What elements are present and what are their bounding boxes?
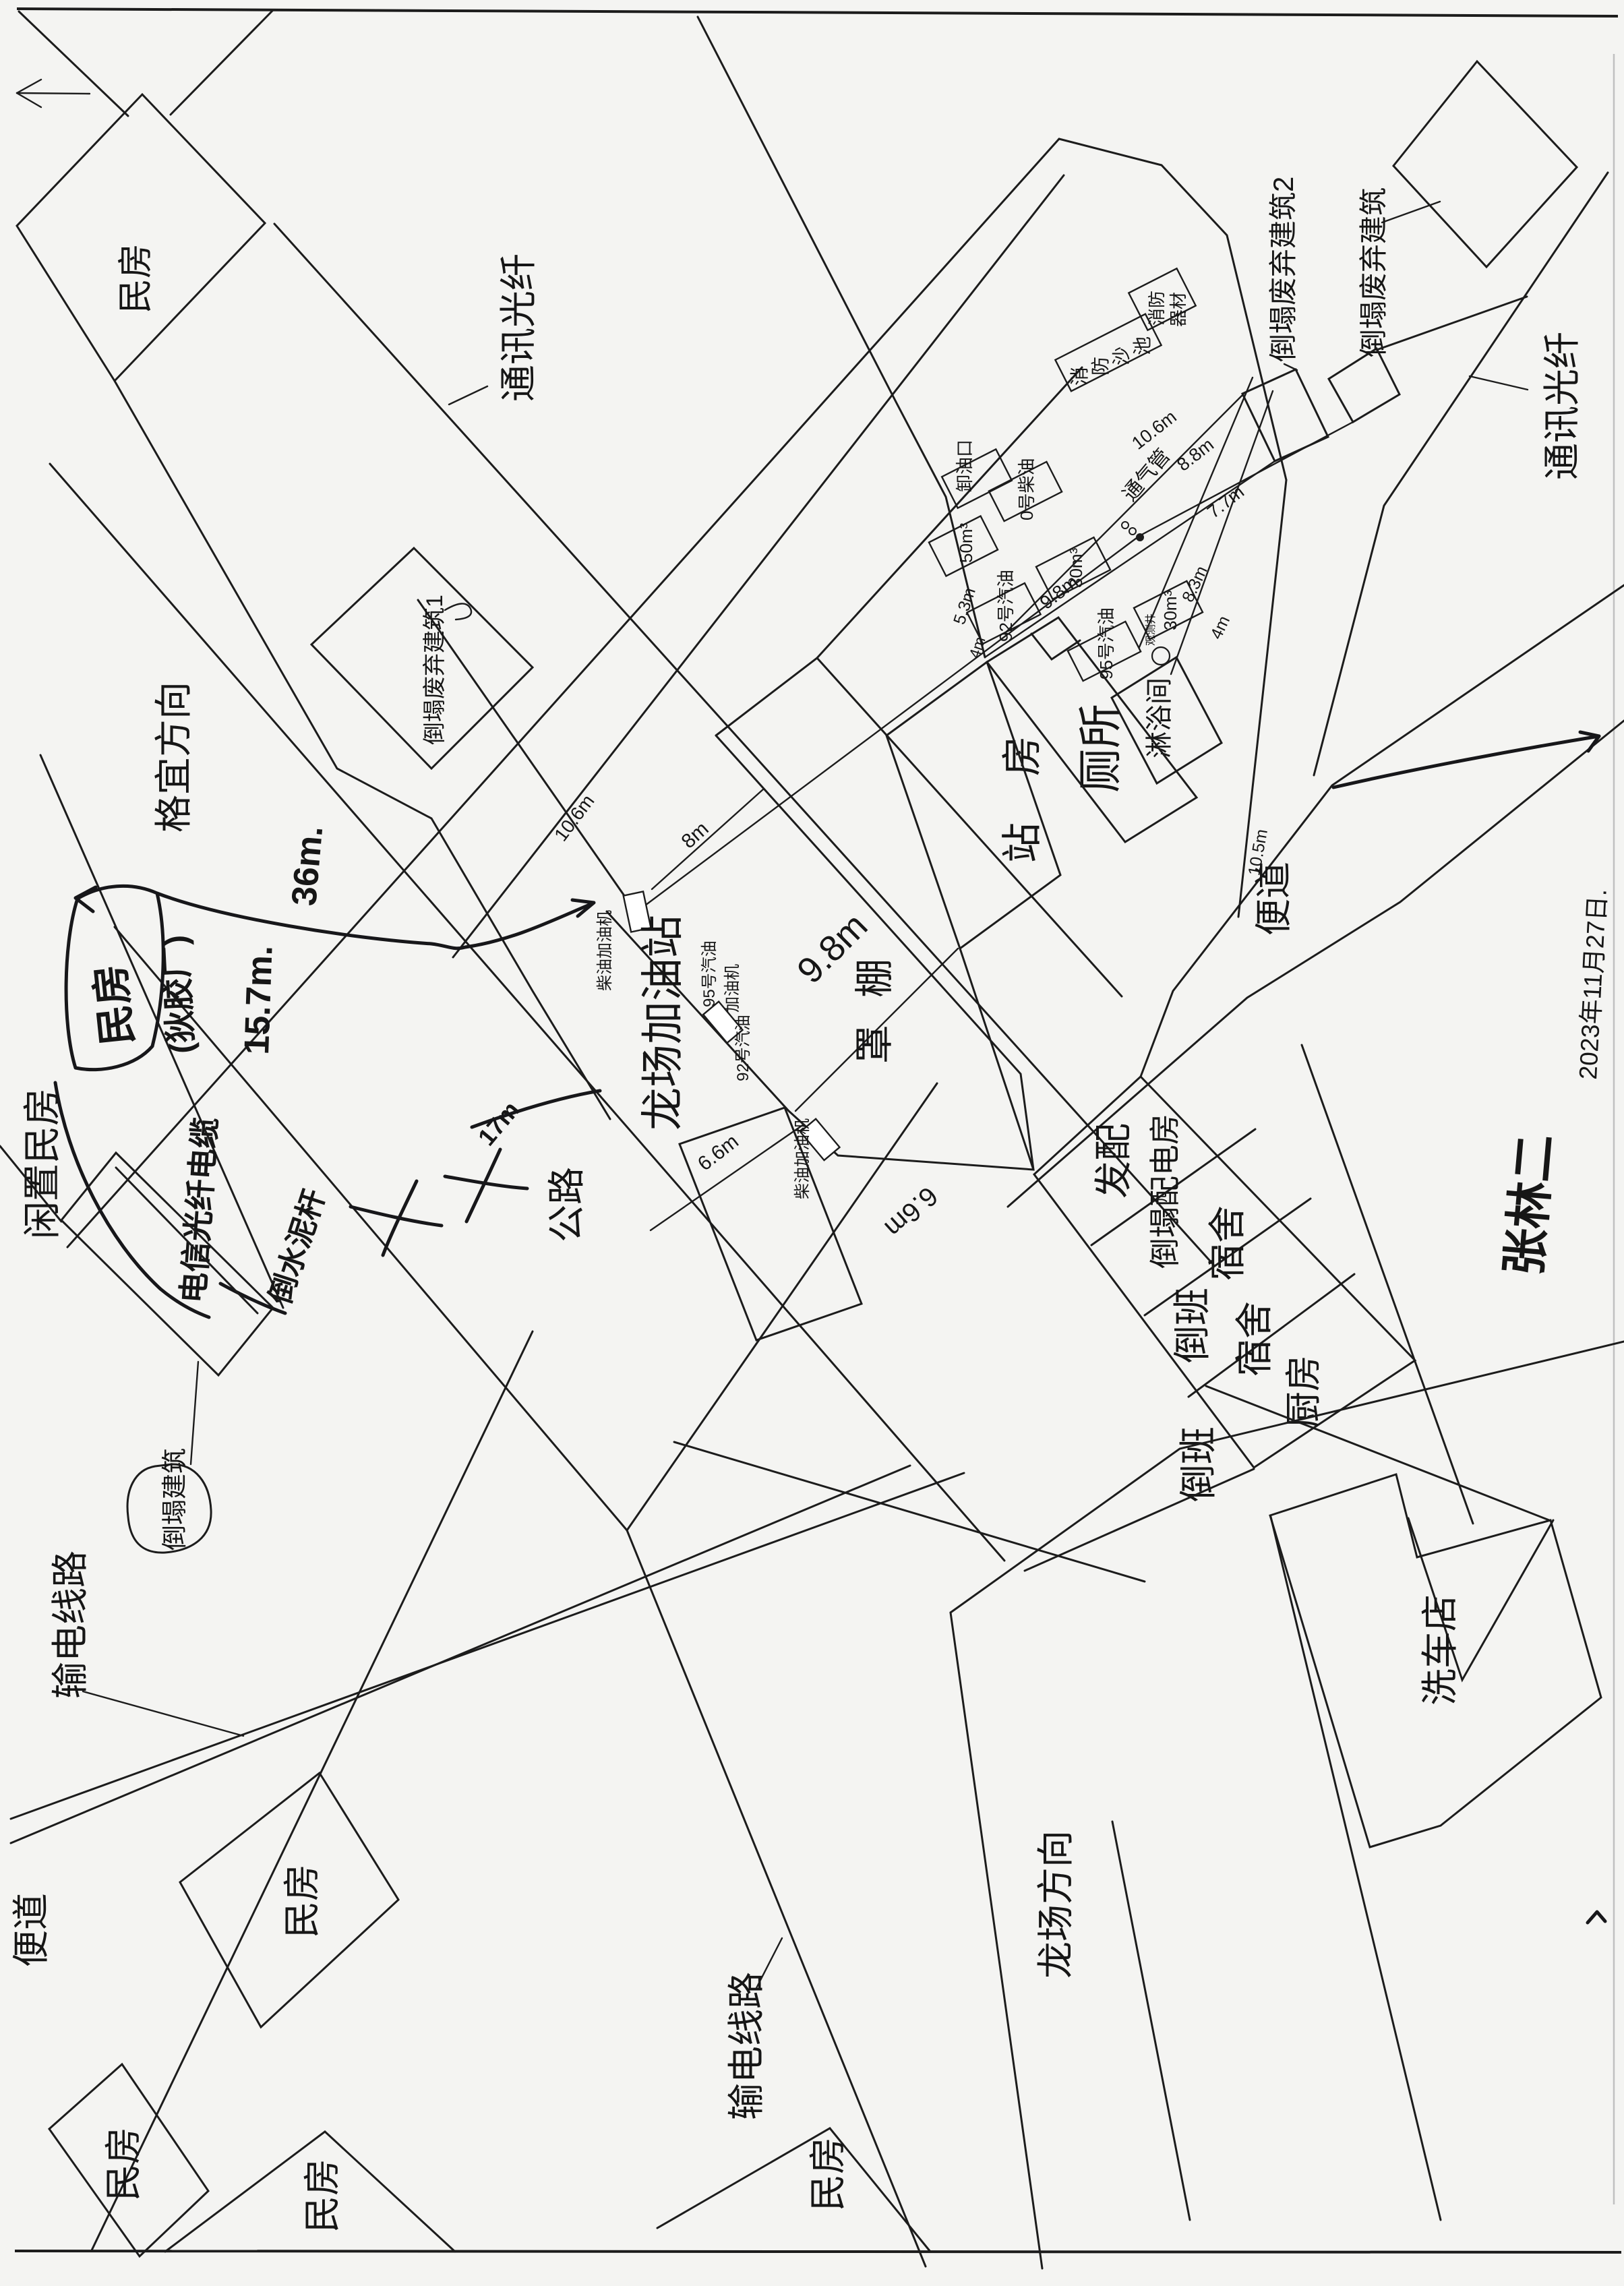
svg-text:倒塌废弃建筑1: 倒塌废弃建筑1 <box>422 595 448 745</box>
svg-text:罩 棚: 罩 棚 <box>853 951 897 1064</box>
svg-text:输电线路: 输电线路 <box>49 1551 91 1699</box>
svg-text:0号柴油: 0号柴油 <box>1017 458 1037 520</box>
svg-text:92号汽油: 92号汽油 <box>734 1015 752 1081</box>
svg-text:消: 消 <box>1069 367 1090 386</box>
svg-text:倒塌废弃建筑2: 倒塌废弃建筑2 <box>1267 177 1299 362</box>
svg-text:倒塌建筑: 倒塌建筑 <box>161 1448 189 1551</box>
svg-text:通讯光纤: 通讯光纤 <box>1541 332 1583 480</box>
svg-text:柴油加油机: 柴油加油机 <box>596 910 614 991</box>
svg-text:50m³: 50m³ <box>956 522 976 563</box>
svg-text:倒塌废弃建筑: 倒塌废弃建筑 <box>1358 187 1389 357</box>
svg-text:15.7m.: 15.7m. <box>237 945 280 1056</box>
svg-text:沙: 沙 <box>1111 347 1132 365</box>
svg-text:龙场方向: 龙场方向 <box>1035 1830 1077 1979</box>
svg-text:防: 防 <box>1090 357 1111 375</box>
svg-text:宿舍: 宿舍 <box>1206 1205 1249 1281</box>
svg-text:厨房: 厨房 <box>1284 1355 1324 1428</box>
svg-text:(狄胶厂): (狄胶厂) <box>158 934 200 1055</box>
svg-text:民房: 民房 <box>807 2137 849 2211</box>
svg-text:宿舍: 宿舍 <box>1233 1301 1275 1377</box>
svg-text:95号汽油: 95号汽油 <box>1096 607 1116 680</box>
svg-text:洗车店: 洗车店 <box>1419 1594 1461 1706</box>
svg-text:通讯光纤: 通讯光纤 <box>498 253 539 402</box>
svg-text:站 房: 站 房 <box>1000 718 1045 863</box>
svg-text:便道: 便道 <box>10 1893 52 1967</box>
svg-text:器材: 器材 <box>1168 292 1189 327</box>
svg-text:龙场加油站: 龙场加油站 <box>638 915 687 1131</box>
svg-text:消防: 消防 <box>1147 291 1167 326</box>
svg-text:95号汽油: 95号汽油 <box>700 940 719 1007</box>
svg-text:30m³: 30m³ <box>1160 590 1180 630</box>
svg-text:格宜方向: 格宜方向 <box>152 682 195 833</box>
svg-text:卸油口: 卸油口 <box>955 440 975 492</box>
svg-text:倒班: 倒班 <box>1177 1426 1220 1502</box>
svg-text:民房: 民房 <box>102 2127 144 2201</box>
svg-text:民房: 民房 <box>281 1864 323 1938</box>
svg-text:倒塌配电房: 倒塌配电房 <box>1147 1114 1182 1269</box>
svg-text:便道: 便道 <box>1253 862 1294 936</box>
svg-text:厕所: 厕所 <box>1075 704 1125 793</box>
svg-text:民房: 民房 <box>117 243 156 313</box>
svg-text:输电线路: 输电线路 <box>725 1972 767 2120</box>
svg-text:36m.: 36m. <box>284 824 330 907</box>
svg-text:民房: 民房 <box>301 2159 343 2233</box>
svg-text:民房: 民房 <box>88 962 141 1047</box>
svg-text:加油机: 加油机 <box>723 964 742 1013</box>
svg-text:淋浴间: 淋浴间 <box>1145 678 1174 758</box>
svg-text:池: 池 <box>1132 336 1153 355</box>
svg-text:公路: 公路 <box>545 1167 588 1242</box>
svg-text:闲置民房: 闲置民房 <box>21 1088 63 1239</box>
svg-text:倒班: 倒班 <box>1171 1288 1213 1363</box>
svg-text:发配: 发配 <box>1092 1123 1135 1199</box>
svg-text:观测井: 观测井 <box>1145 613 1157 646</box>
